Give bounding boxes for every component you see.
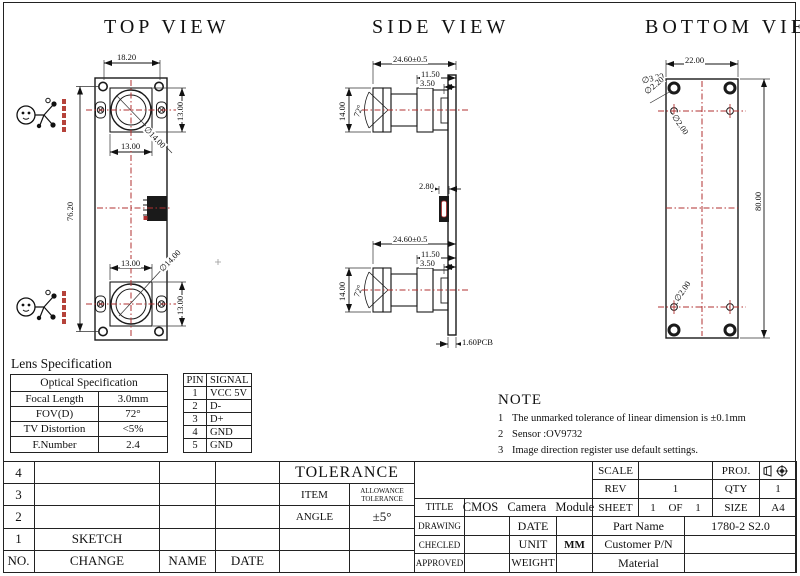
pin-cell: 5 — [184, 439, 207, 452]
no-header: NO. — [3, 551, 35, 573]
pin-header: PIN — [184, 374, 207, 387]
mic-wiring-icon — [17, 290, 66, 324]
date-label: DATE — [510, 517, 557, 536]
empty-cell — [415, 462, 593, 499]
dim-label: 13.00 — [176, 295, 185, 316]
rev-label: REV — [593, 480, 639, 499]
top-view-title: TOP VIEW — [104, 16, 230, 39]
part-name-label: Part Name — [593, 517, 685, 536]
bottom-view-drawing — [650, 60, 770, 338]
dim-label: 13.00 — [120, 142, 141, 151]
empty-cell — [350, 551, 415, 573]
spec-value: <5% — [99, 422, 167, 437]
note-title: NOTE — [498, 392, 798, 409]
item-label: ITEM — [280, 484, 350, 506]
top-view-drawing — [76, 60, 221, 340]
dim-label: 14.00 — [338, 101, 347, 122]
sheet-value: 1 OF 1 — [639, 499, 713, 517]
dim-label: 3.50 — [419, 259, 436, 268]
usb-connector-side — [439, 196, 449, 222]
approved-label: APPROVED — [415, 554, 465, 573]
angle-tolerance-value: ±5° — [350, 506, 415, 528]
dim-label: 24.60±0.5 — [392, 235, 428, 244]
signal-cell: VCC 5V — [207, 387, 251, 400]
customer-pn-label: Customer P/N — [593, 536, 685, 554]
pin-table: PIN SIGNAL 1 VCC 5V 2 D- 3 D+ 4 GND 5 GN… — [183, 373, 252, 453]
note-item: 3Image direction register use default se… — [498, 445, 798, 456]
signal-cell: GND — [207, 426, 251, 439]
red-annotation-marks — [62, 291, 66, 324]
third-angle-projection-icon — [762, 463, 795, 478]
allowance-tolerance-label: ALLOWANCE TOLERANCE — [350, 484, 415, 506]
dim-label: 14.00 — [338, 281, 347, 302]
dim-label: 13.00 — [176, 101, 185, 122]
drawing-label: DRAWING — [415, 517, 465, 536]
spec-value: 3.0mm — [99, 392, 167, 407]
rev-name — [160, 506, 216, 528]
side-view-drawing — [345, 61, 470, 348]
date-value — [557, 517, 593, 536]
rev-date — [216, 529, 280, 551]
tolerance-header: TOLERANCE — [280, 462, 415, 484]
rev-no: 1 — [3, 529, 35, 551]
note-item-text: Sensor :OV9732 — [512, 429, 582, 440]
lens-spec-table: Optical Specification Focal Length 3.0mm… — [10, 374, 168, 453]
note-item: 2Sensor :OV9732 — [498, 429, 798, 440]
proj-label: PROJ. — [713, 462, 760, 480]
weight-value — [557, 554, 593, 573]
checked-label: CHECLED — [415, 536, 465, 554]
revision-table: 4 TOLERANCE 3 ITEM ALLOWANCE TOLERANCE 2… — [3, 462, 415, 573]
date-header: DATE — [216, 551, 280, 573]
dim-label: 80.00 — [754, 191, 763, 212]
checked-value — [465, 536, 510, 554]
lens-spec-header: Optical Specification — [11, 375, 167, 392]
title-value: CMOS Camera Module — [465, 499, 593, 517]
rev-change — [35, 484, 160, 506]
allowance-line: TOLERANCE — [361, 495, 402, 503]
rev-date — [216, 484, 280, 506]
rev-no: 3 — [3, 484, 35, 506]
rev-change — [35, 506, 160, 528]
allowance-line: ALLOWANCE — [360, 487, 404, 495]
dim-label: 18.20 — [116, 53, 137, 62]
projection-symbol — [760, 462, 797, 480]
rev-name — [160, 484, 216, 506]
note-item-number: 2 — [498, 429, 512, 440]
note-item-text: The unmarked tolerance of linear dimensi… — [512, 413, 746, 424]
dim-label: 24.60±0.5 — [392, 55, 428, 64]
angle-label: ANGLE — [280, 506, 350, 528]
material-label: Material — [593, 554, 685, 573]
note-item-number: 3 — [498, 445, 512, 456]
unit-value: MM — [557, 536, 593, 554]
red-annotation-marks — [62, 99, 66, 132]
spec-label: Focal Length — [11, 392, 99, 407]
note-item-text: Image direction register use default set… — [512, 445, 698, 456]
spec-label: F.Number — [11, 437, 99, 452]
dim-label: 1.60PCB — [461, 338, 494, 347]
dim-label: 2.80 — [418, 182, 435, 191]
dim-label: 3.50 — [419, 79, 436, 88]
side-view-title: SIDE VIEW — [372, 16, 509, 39]
empty-cell — [350, 529, 415, 551]
rev-date — [216, 462, 280, 484]
empty-cell — [280, 551, 350, 573]
pin-cell: 3 — [184, 413, 207, 426]
dim-label: 22.00 — [684, 56, 705, 65]
weight-label: WEIGHT — [510, 554, 557, 573]
title-label: TITLE — [415, 499, 465, 517]
note-item-number: 1 — [498, 413, 512, 424]
spec-value: 2.4 — [99, 437, 167, 452]
drawing-sheet: TOP VIEW SIDE VIEW BOTTOM VIEW 18.20 76.… — [0, 0, 800, 576]
size-label: SIZE — [713, 499, 760, 517]
approved-value — [465, 554, 510, 573]
signal-cell: GND — [207, 439, 251, 452]
drawing-value — [465, 517, 510, 536]
signal-cell: D- — [207, 400, 251, 413]
dim-label: 76.20 — [66, 201, 75, 222]
rev-value: 1 — [639, 480, 713, 499]
rev-name — [160, 529, 216, 551]
scale-value — [639, 462, 713, 480]
sheet-label: SHEET — [593, 499, 639, 517]
pin-cell: 2 — [184, 400, 207, 413]
dim-label: 13.00 — [120, 259, 141, 268]
rev-change — [35, 462, 160, 484]
signal-cell: D+ — [207, 413, 251, 426]
customer-pn-value — [685, 536, 797, 554]
rev-no: 4 — [3, 462, 35, 484]
empty-cell — [280, 529, 350, 551]
lens-spec-title: Lens Specification — [11, 356, 112, 372]
rev-name — [160, 462, 216, 484]
rev-no: 2 — [3, 506, 35, 528]
size-value: A4 — [760, 499, 797, 517]
sketch-label: SKETCH — [35, 529, 160, 551]
name-header: NAME — [160, 551, 216, 573]
spec-label: TV Distortion — [11, 422, 99, 437]
mic-wiring-icon — [17, 98, 66, 132]
spec-label: FOV(D) — [11, 407, 99, 422]
center-mark — [215, 259, 221, 265]
material-value — [685, 554, 797, 573]
rev-date — [216, 506, 280, 528]
note-block: NOTE 1The unmarked tolerance of linear d… — [498, 392, 798, 461]
bottom-view-title: BOTTOM VIEW — [645, 16, 800, 39]
pin-cell: 4 — [184, 426, 207, 439]
qty-label: QTY — [713, 480, 760, 499]
change-header: CHANGE — [35, 551, 160, 573]
qty-value: 1 — [760, 480, 797, 499]
pin-cell: 1 — [184, 387, 207, 400]
scale-label: SCALE — [593, 462, 639, 480]
note-item: 1The unmarked tolerance of linear dimens… — [498, 413, 798, 424]
unit-label: UNIT — [510, 536, 557, 554]
signal-header: SIGNAL — [207, 374, 251, 387]
part-name-value: 1780-2 S2.0 — [685, 517, 797, 536]
spec-value: 72° — [99, 407, 167, 422]
